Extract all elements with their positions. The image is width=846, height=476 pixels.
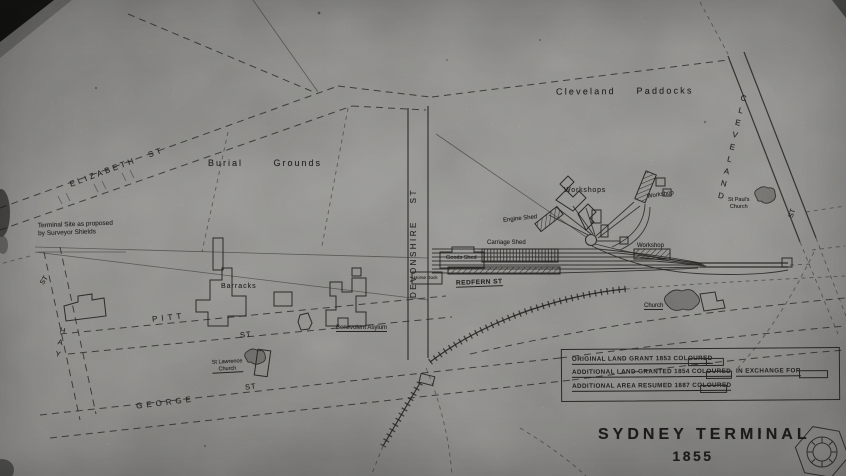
street-label-elizabeth: ELIZABETH ST <box>68 145 165 188</box>
horse-dock-label: Horse Dock <box>414 275 438 280</box>
goods-shed-label: Goods Shed <box>446 255 477 261</box>
buildings-layer <box>64 171 776 377</box>
street-label-cleveland-st: ST <box>788 208 797 219</box>
street-label-hay: HAY <box>52 325 68 362</box>
workshops-label: Workshops <box>564 187 606 194</box>
streets-layer <box>0 0 846 476</box>
benevolent-asylum-label: Benevolent Asylum <box>336 325 387 332</box>
map-title: SYDNEY TERMINAL <box>598 426 788 444</box>
legend-row2-swatch2 <box>799 370 828 378</box>
church-se-label: Church <box>644 303 663 310</box>
photo-artifacts <box>0 0 846 476</box>
map-title-year: 1855 <box>598 448 788 464</box>
st-pauls-line1: St Paul's <box>728 197 750 204</box>
street-label-pitt: PITT <box>152 311 186 323</box>
terminal-site-note: Terminal Site as proposed by Surveyor Sh… <box>38 220 114 239</box>
terminal-site-note-line2: by Surveyor Shields <box>38 228 113 239</box>
legend-row2-swatch1 <box>706 371 732 379</box>
legend-row2-exchange-label: IN EXCHANGE FOR <box>736 367 801 376</box>
map-photograph: Cleveland Paddocks Burial Grounds ELIZAB… <box>0 0 846 476</box>
street-label-hay-st: ST <box>39 275 50 286</box>
st-pauls-church-label: St Paul's Church <box>728 197 750 210</box>
legend-box: ORIGINAL LAND GRANT 1853 COLOURED ADDITI… <box>561 347 840 402</box>
street-label-george: GEORGE <box>136 394 196 410</box>
workshop-ne-label: Workshop <box>647 190 674 200</box>
legend-row3-swatch <box>700 385 727 393</box>
carriage-shed-label: Carriage Shed <box>487 240 526 246</box>
burial-grounds-label: Burial Grounds <box>208 158 322 168</box>
legend-row1-swatch <box>688 358 724 366</box>
street-label-george-st: ST <box>244 381 257 391</box>
engine-shed-label: Engine Shed <box>503 214 538 224</box>
barracks-label: Barracks <box>221 283 257 290</box>
street-label-devonshire: DEVONSHIRE ST <box>409 188 418 298</box>
st-lawrence-church-label: St Lawrence Church <box>212 358 243 374</box>
workshop-se-label: Workshop <box>637 243 664 249</box>
st-pauls-line2: Church <box>728 204 750 211</box>
street-label-cleveland: CLEVELAND <box>715 93 749 205</box>
railway-layer <box>371 134 845 476</box>
film-grain-overlay <box>0 0 846 476</box>
cleveland-paddocks-label: Cleveland Paddocks <box>556 85 694 96</box>
street-label-pitt-st: ST <box>240 329 252 339</box>
map-linework <box>0 0 846 476</box>
street-label-redfern: REDFERN ST <box>456 278 503 288</box>
